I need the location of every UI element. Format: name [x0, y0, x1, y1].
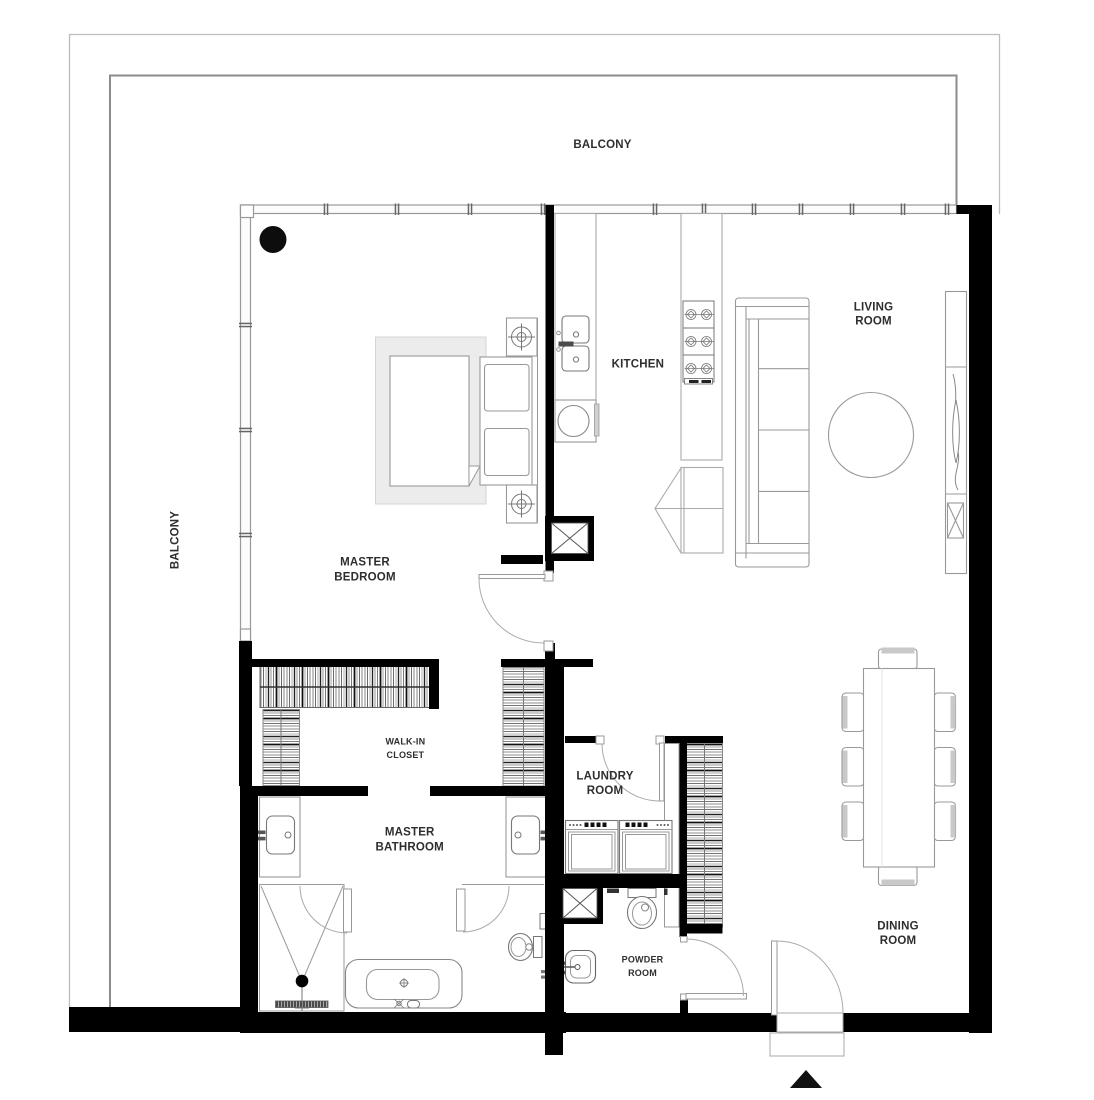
svg-text:ROOM: ROOM: [880, 935, 917, 947]
svg-text:CLOSET: CLOSET: [387, 750, 425, 760]
svg-text:ROOM: ROOM: [628, 968, 657, 978]
svg-text:LIVING: LIVING: [854, 302, 894, 314]
svg-text:BALCONY: BALCONY: [573, 139, 631, 151]
svg-text:ROOM: ROOM: [855, 316, 892, 328]
svg-text:MASTER: MASTER: [340, 557, 390, 569]
svg-text:KITCHEN: KITCHEN: [612, 359, 665, 371]
svg-text:BALCONY: BALCONY: [170, 511, 182, 569]
svg-text:LAUNDRY: LAUNDRY: [576, 771, 633, 783]
svg-text:MASTER: MASTER: [385, 827, 435, 839]
svg-text:BATHROOM: BATHROOM: [375, 842, 443, 854]
svg-text:BEDROOM: BEDROOM: [334, 572, 395, 584]
svg-text:ROOM: ROOM: [587, 785, 624, 797]
svg-text:POWDER: POWDER: [622, 955, 664, 965]
svg-text:DINING: DINING: [877, 921, 918, 933]
svg-text:WALK-IN: WALK-IN: [385, 737, 425, 747]
